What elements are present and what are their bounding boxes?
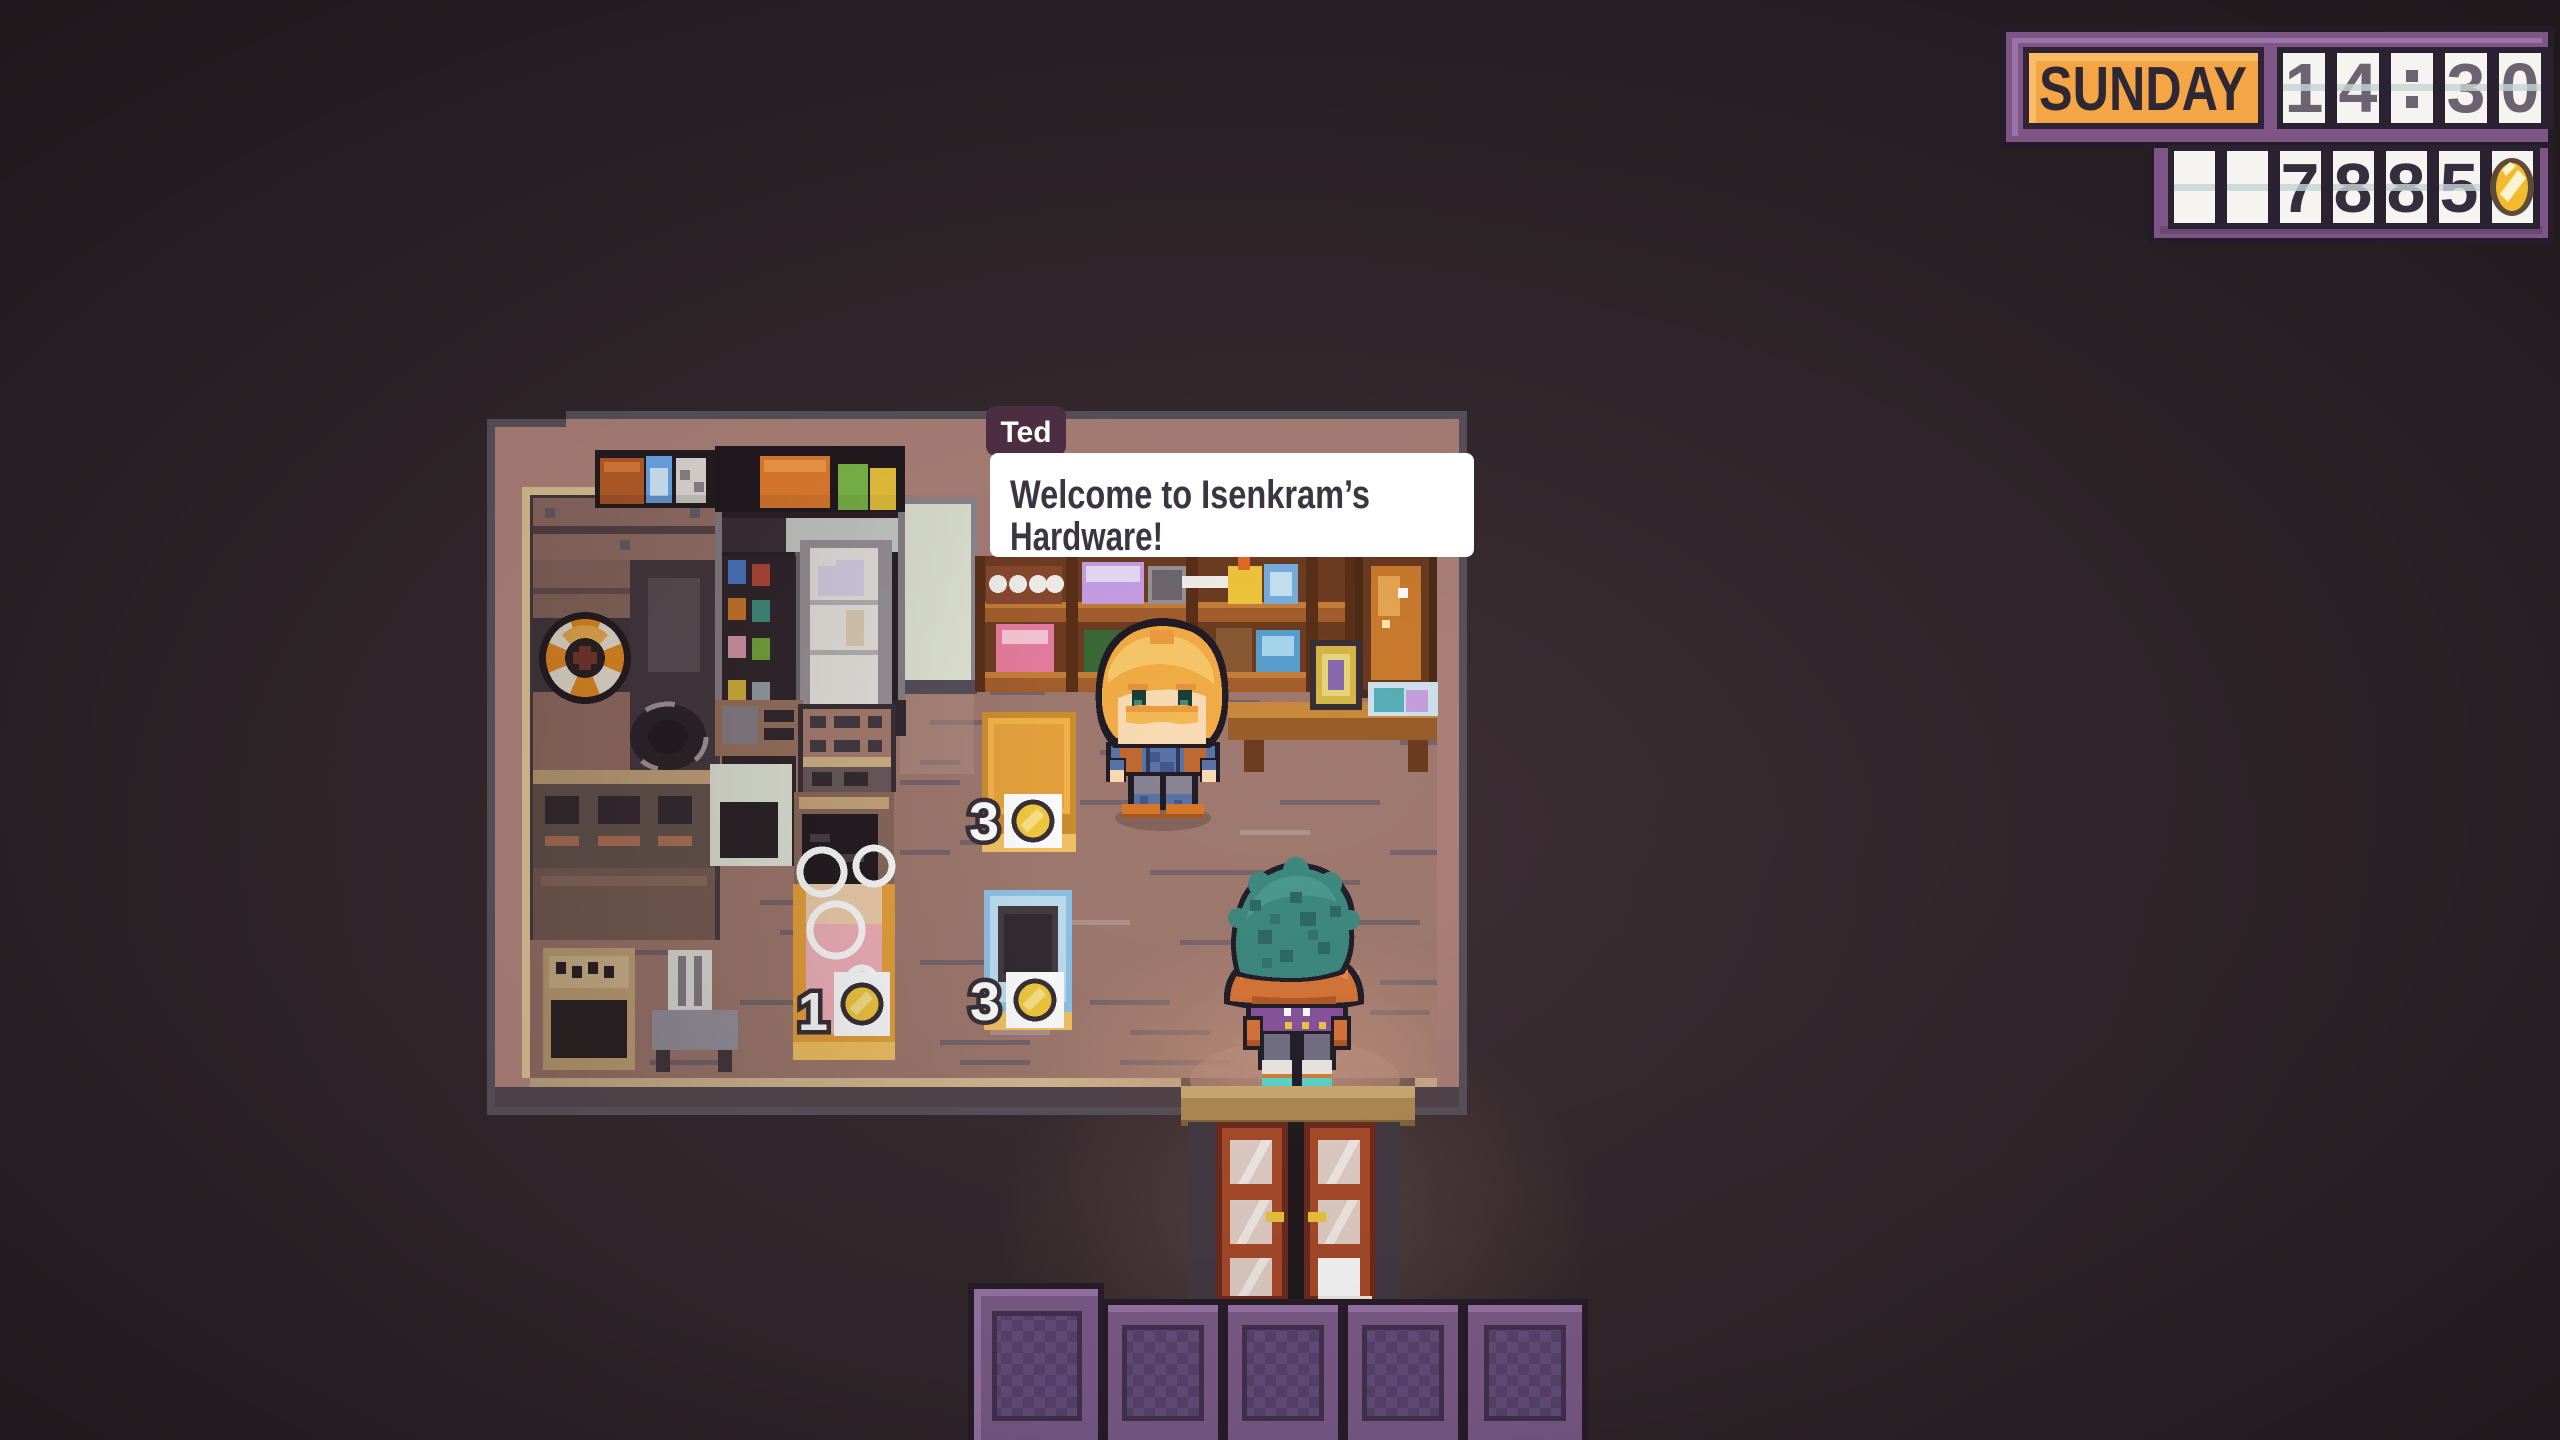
svg-text:Hardware!: Hardware!	[1010, 515, 1163, 559]
svg-text:Ted: Ted	[1000, 416, 1051, 449]
svg-text:Welcome to Isenkram’s: Welcome to Isenkram’s	[1010, 473, 1370, 517]
svg-text:SUNDAY: SUNDAY	[2039, 55, 2247, 124]
